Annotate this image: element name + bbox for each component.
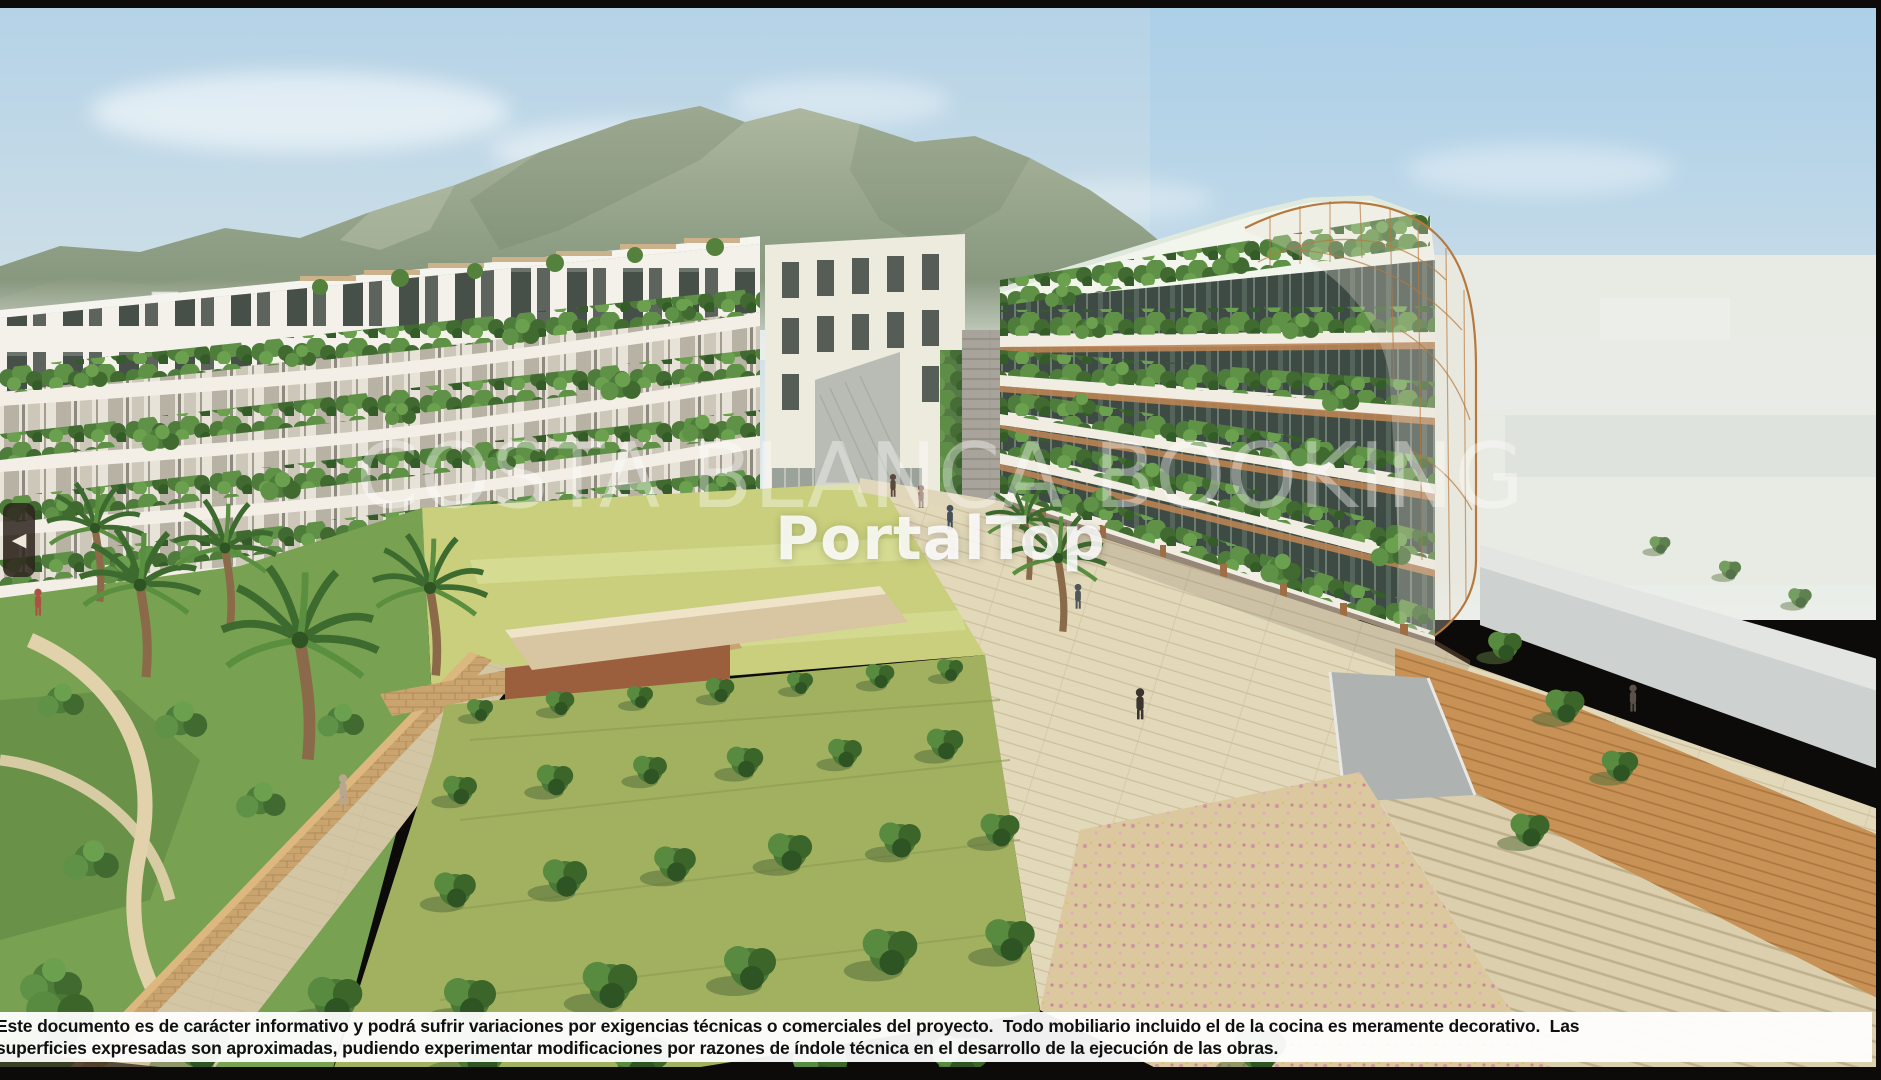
property-photo-viewer: COSTA BLANCA BOOKING PortalTop ◀ Este do… (0, 0, 1881, 1080)
previous-photo-button[interactable]: ◀ (3, 503, 35, 577)
disclaimer-band: Este documento es de carácter informativ… (0, 1012, 1872, 1062)
letterbox-top (0, 0, 1881, 8)
letterbox-bottom (0, 1067, 1881, 1080)
letterbox-right (1876, 0, 1881, 1080)
chevron-left-icon: ◀ (12, 531, 27, 550)
disclaimer-line-2: superficies expresadas son aproximadas, … (0, 1037, 1872, 1059)
portal-watermark: PortalTop (775, 504, 1106, 574)
disclaimer-line-1: Este documento es de carácter informativ… (0, 1015, 1872, 1037)
